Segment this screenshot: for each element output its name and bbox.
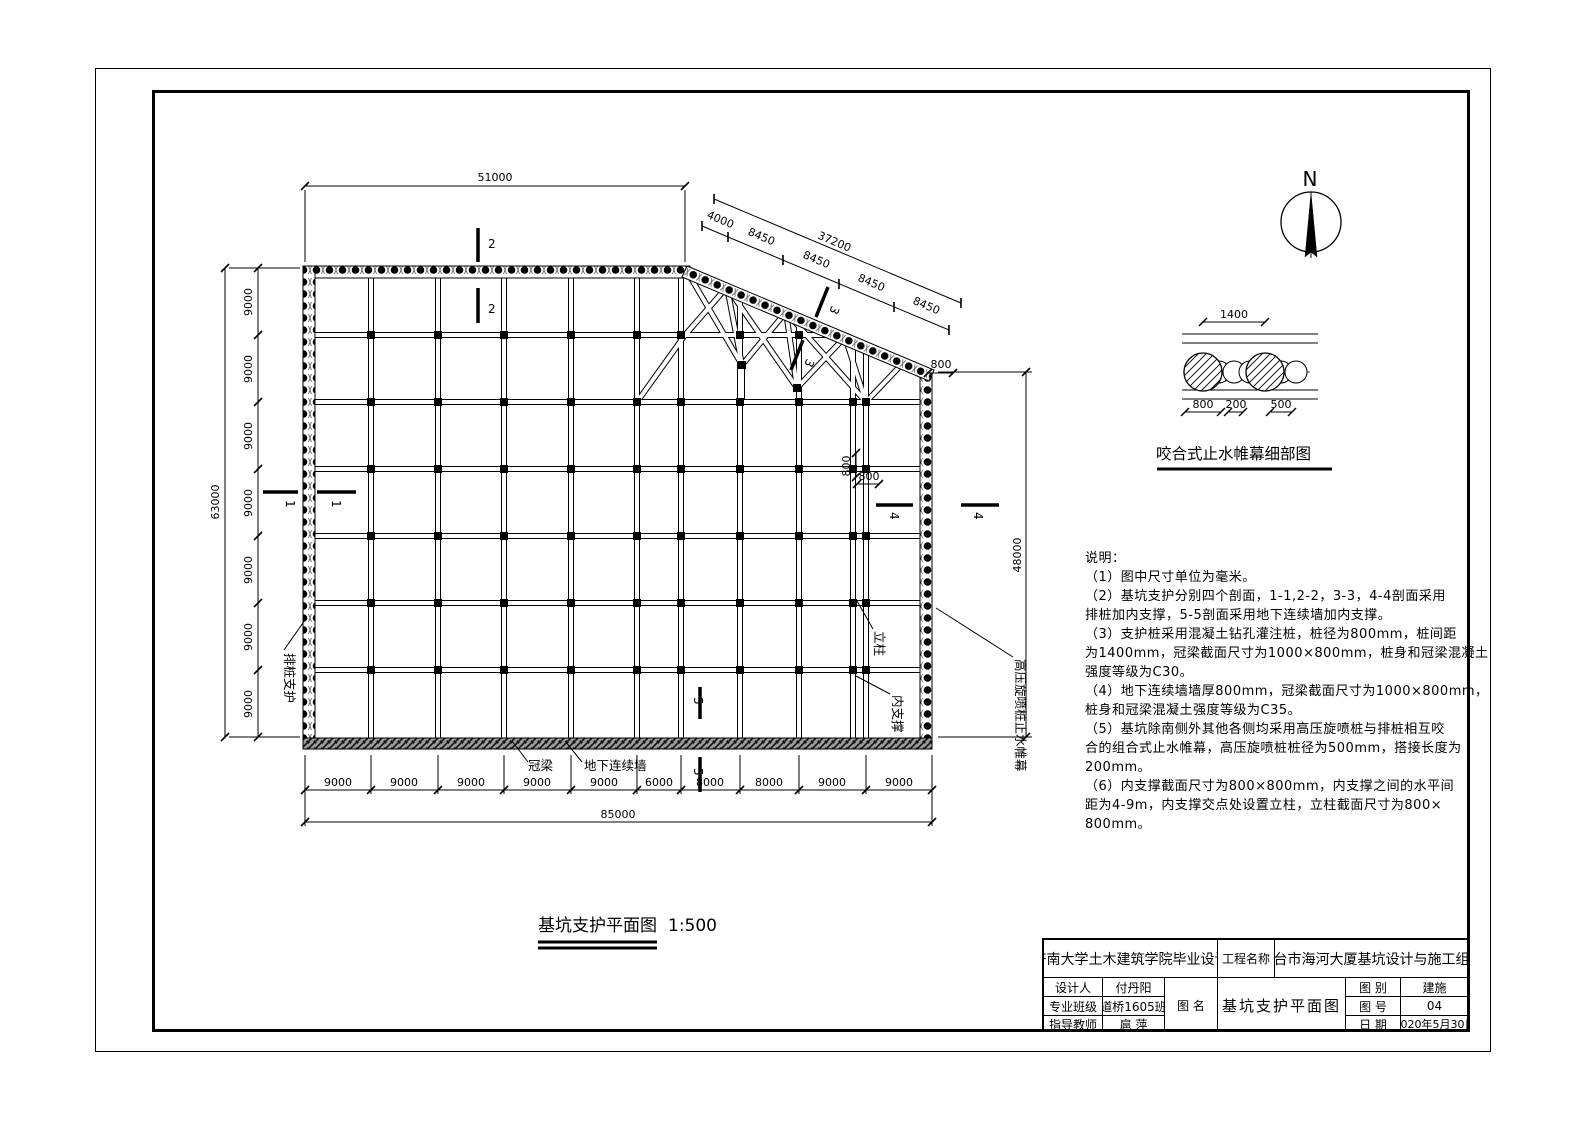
detail-dim-500: 500 [1271, 398, 1292, 411]
dim-bottom-seg: 6000 [645, 776, 673, 789]
dim-bottom-seg: 9000 [523, 776, 551, 789]
plan-caption-scale: 1:500 [668, 916, 717, 936]
titleblock-project-name: 烟台市海河大厦基坑设计与施工组织 [1274, 940, 1468, 977]
dim-diag-total: 37200 [816, 229, 853, 255]
note-line: （4）地下连续墙墙厚800mm，冠梁截面尺寸为1000×800mm， [1085, 682, 1465, 701]
titleblock-designer-value: 付丹阳 [1102, 977, 1164, 996]
section-3-label: 3 [826, 304, 842, 317]
dim-diag-seg: 8450 [746, 225, 777, 248]
titleblock-figname: 基坑支护平面图 [1217, 977, 1345, 1032]
titleblock-university: 济南大学土木建筑学院毕业设计 [1044, 940, 1217, 977]
label-column: 立柱 [872, 631, 887, 656]
notes-title: 说明： [1085, 549, 1465, 568]
titleblock-figtype-value: 建施 [1400, 977, 1468, 996]
note-line: 排桩加内支撑，5-5剖面采用地下连续墙加内支撑。 [1085, 606, 1465, 625]
dim-diag-seg: 8450 [856, 271, 887, 294]
dim-bottom-seg: 8000 [755, 776, 783, 789]
dim-mid-800-h: 800 [859, 470, 880, 483]
note-line: 桩身和冠梁混凝土强度等级为C35。 [1085, 701, 1465, 720]
note-line: （2）基坑支护分别四个剖面，1-1,2-2，3-3，4-4剖面采用 [1085, 587, 1465, 606]
plan-caption-underline [538, 942, 657, 948]
note-line: （5）基坑除南侧外其他各侧均采用高压旋喷桩与排桩相互咬 [1085, 720, 1465, 739]
section-2-label: 2 [488, 302, 496, 316]
titleblock-date-label: 日 期 [1345, 1015, 1400, 1032]
dim-bottom-seg: 9000 [885, 776, 913, 789]
note-line: 800mm。 [1085, 815, 1465, 834]
dim-diag-seg: 8450 [911, 294, 942, 317]
note-line: 200mm。 [1085, 758, 1465, 777]
detail-dim-200: 200 [1226, 398, 1247, 411]
dim-left-seg: 9000 [242, 355, 255, 383]
dim-left-seg: 9000 [242, 422, 255, 450]
note-line: （6）内支撑截面尺寸为800×800mm，内支撑之间的水平间 [1085, 777, 1465, 796]
dim-left-seg: 9000 [242, 489, 255, 517]
note-line: 为1400mm，冠梁截面尺寸为1000×800mm，桩身和冠梁混凝土 [1085, 644, 1465, 663]
dim-bottom-seg: 8000 [696, 776, 724, 789]
titleblock-designer-label: 设计人 [1044, 977, 1102, 996]
north-label: N [1303, 167, 1318, 191]
dim-left-seg: 9000 [242, 690, 255, 718]
note-line: 合的组合式止水帷幕，高压旋喷桩桩径为500mm，搭接长度为 [1085, 739, 1465, 758]
section-1-label: 1 [283, 500, 297, 508]
title-block: 济南大学土木建筑学院毕业设计 工程名称 烟台市海河大厦基坑设计与施工组织 设计人… [1042, 938, 1470, 1032]
dim-left-seg: 9000 [242, 288, 255, 316]
dim-bottom-total: 85000 [601, 808, 636, 821]
dim-bottom-seg: 9000 [324, 776, 352, 789]
titleblock-fignum-label: 图 号 [1345, 996, 1400, 1015]
section-2-label: 2 [488, 237, 496, 251]
titleblock-figname-label: 图 名 [1164, 977, 1217, 1032]
note-line: 强度等级为C30。 [1085, 663, 1465, 682]
dim-top-total: 51000 [478, 171, 513, 184]
detail-caption: 咬合式止水帷幕细部图 [1156, 445, 1311, 463]
section-3-label: 3 [801, 357, 817, 370]
section-5-label: 5 [691, 697, 705, 705]
titleblock-project-label: 工程名称 [1217, 940, 1274, 977]
dim-bottom-seg: 9000 [818, 776, 846, 789]
section-1-label: 1 [329, 500, 343, 508]
titleblock-advisor-label: 指导教师 [1044, 1015, 1102, 1032]
dim-left-seg: 9000 [242, 556, 255, 584]
dim-right-total: 48000 [1011, 538, 1024, 573]
label-jet-curtain: 高压旋喷桩止水帷幕 [1013, 659, 1028, 772]
note-line: 距为4-9m，内支撑交点处设置立柱，立柱截面尺寸为800× [1085, 796, 1465, 815]
titleblock-fignum-value: 04 [1400, 996, 1468, 1015]
dim-diag-seg: 8450 [801, 248, 832, 271]
titleblock-class-value: 道桥1605班 [1102, 996, 1164, 1015]
diaphragm-wall [303, 738, 932, 749]
dim-bottom-seg: 9000 [457, 776, 485, 789]
titleblock-date-value: 2020年5月30日 [1400, 1015, 1468, 1032]
section-5-label: 5 [691, 768, 705, 776]
north-arrow [1281, 192, 1341, 258]
notes-block: 说明： （1）图中尺寸单位为毫米。 （2）基坑支护分别四个剖面，1-1,2-2，… [1085, 549, 1465, 834]
plan-caption-title: 基坑支护平面图 [538, 916, 657, 936]
section-4-label: 4 [971, 512, 985, 520]
titleblock-class-label: 专业班级 [1044, 996, 1102, 1015]
note-line: （3）支护桩采用混凝土钻孔灌注桩，桩径为800mm，桩间距 [1085, 625, 1465, 644]
label-strut: 内支撑 [890, 695, 905, 733]
dim-left-total: 63000 [209, 485, 222, 520]
label-diaphragm-wall: 地下连续墙 [584, 758, 647, 773]
titleblock-advisor-value: 扈 萍 [1102, 1015, 1164, 1032]
detail-dim-800: 800 [1193, 398, 1214, 411]
titleblock-figtype-label: 图 别 [1345, 977, 1400, 996]
drawing-sheet: 51000 63000 9000 9000 9000 9000 9000 900… [0, 0, 1588, 1122]
dim-bottom-seg: 9000 [590, 776, 618, 789]
note-line: （1）图中尺寸单位为毫米。 [1085, 568, 1465, 587]
dim-mid-800-v: 800 [840, 456, 853, 477]
detail-dim-1400: 1400 [1220, 308, 1248, 321]
dim-left-seg: 9000 [242, 623, 255, 651]
section-4-label: 4 [887, 512, 901, 520]
dim-bottom-seg: 9000 [390, 776, 418, 789]
label-crown-beam: 冠梁 [528, 758, 554, 773]
label-pile-support: 排桩支护 [282, 653, 297, 703]
dim-wall-800: 800 [931, 358, 952, 371]
dim-diag-seg: 4000 [705, 208, 736, 231]
